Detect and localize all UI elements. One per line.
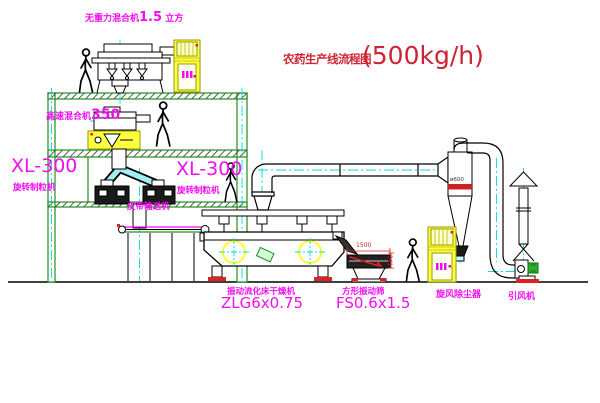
- diagram-title-capacity: (500kg/h): [362, 43, 484, 68]
- label-high-speed-mixer: 高速混合机350: [46, 108, 120, 122]
- label-granulator-right-model: XL-300: [176, 160, 242, 179]
- label-dryer-model: ZLG6x0.75: [221, 296, 303, 311]
- gravity-free-mixer: [92, 44, 174, 93]
- gravity-mixer-unit: 立方: [165, 14, 183, 24]
- control-cabinet-top: [174, 40, 200, 92]
- label-cyclone: 旋风除尘器: [436, 291, 481, 300]
- gravity-mixer-size: 1.5: [139, 10, 162, 25]
- label-granulator-left-name: 旋转制粒机: [13, 184, 56, 193]
- label-cyclone-diameter: ø600: [450, 178, 464, 184]
- control-cabinet-bottom: [428, 227, 456, 282]
- vibrating-sieve: [333, 232, 394, 282]
- hs-mixer-name: 高速混合机: [46, 112, 91, 122]
- dim-sieve-width: 1500: [356, 243, 371, 249]
- fluid-bed-dryer: [202, 210, 344, 281]
- label-granulator-left-model: XL-300: [11, 157, 77, 176]
- label-gravity-free-mixer: 无重力混合机1.5 立方: [85, 11, 183, 24]
- label-belt-conveyor: 皮带输送机: [127, 203, 170, 212]
- belt-conveyor: [117, 204, 212, 281]
- dim-sieve-height: 341: [386, 255, 392, 266]
- hs-mixer-size: 350: [91, 107, 120, 123]
- label-sieve-model: FS0.6x1.5: [336, 296, 410, 311]
- rotary-granulators: [95, 180, 175, 204]
- label-granulator-right-name: 旋转制粒机: [177, 187, 220, 196]
- diagram-title: 农药生产线流程图: [283, 54, 371, 66]
- exhaust-duct: [252, 157, 448, 210]
- label-fan: 引风机: [508, 293, 535, 302]
- gravity-mixer-name: 无重力混合机: [85, 14, 139, 24]
- y-splitter-chute: [106, 169, 157, 184]
- cad-flow-diagram: 无重力混合机1.5 立方 高速混合机350 XL-300 旋转制粒机 XL-30…: [0, 0, 600, 403]
